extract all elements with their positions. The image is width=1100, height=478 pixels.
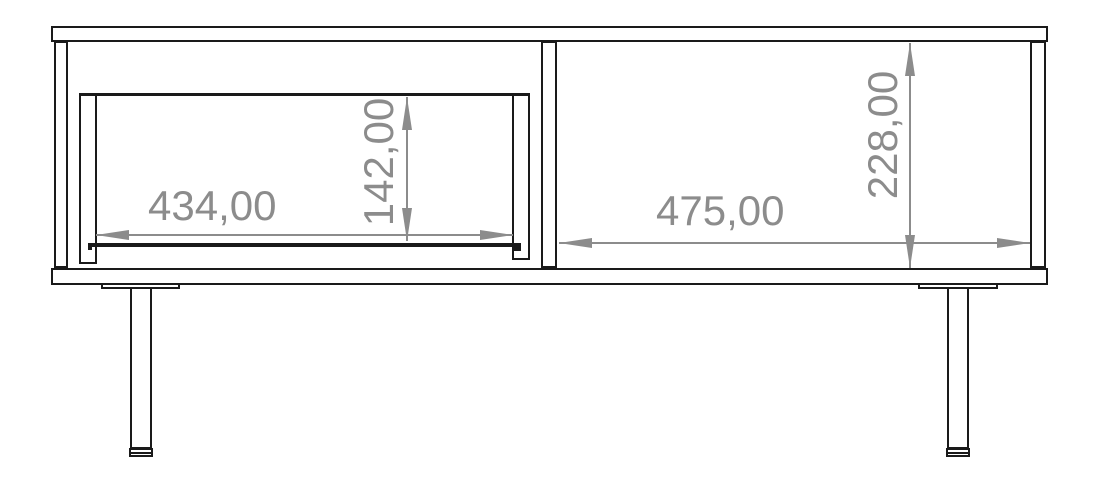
right-leg-foot-line [946,452,970,454]
right-leg [947,287,969,449]
left-leg [130,287,152,449]
center-divider-panel [541,41,557,268]
dim-arrow-228-up-icon [905,43,915,76]
technical-drawing-canvas: 434,00 142,00 475,00 228,00 [0,0,1100,478]
drawer-frame-left-stile [79,93,97,264]
dim-label-434: 434,00 [148,185,276,227]
dim-arrow-434-left-icon [96,230,129,240]
drawer-rail-right-cap [513,246,521,251]
dim-arrow-475-left-icon [559,238,592,248]
right-side-panel [1030,41,1046,268]
bottom-panel [51,268,1048,285]
dim-line-475 [559,242,1030,244]
drawer-rail-left-cap [88,243,92,250]
drawer-frame-right-stile [512,93,530,260]
left-leg-foot-line [129,452,153,454]
dim-label-228: 228,00 [862,65,904,205]
dim-arrow-475-right-icon [997,238,1030,248]
drawer-frame-top-rail [79,93,529,96]
dim-arrow-142-down-icon [402,208,412,241]
dim-label-142: 142,00 [358,92,400,232]
top-panel [51,26,1048,42]
dim-arrow-434-right-icon [480,230,513,240]
left-side-panel [54,41,68,268]
dim-line-434 [96,234,513,236]
dim-label-475: 475,00 [656,190,784,232]
dim-arrow-142-up-icon [402,97,412,130]
dim-arrow-228-down-icon [905,235,915,268]
drawer-bottom-rail [88,243,521,247]
